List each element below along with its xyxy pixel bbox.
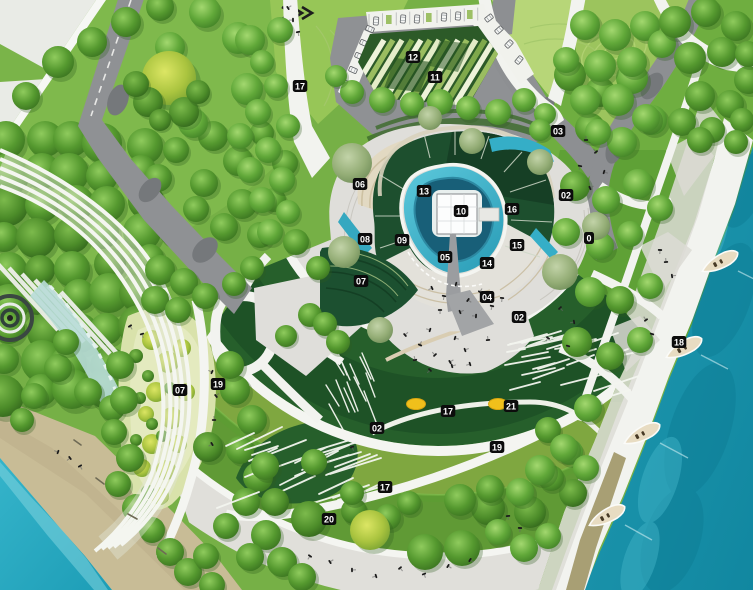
svg-text:12: 12 — [408, 52, 418, 62]
svg-text:06: 06 — [355, 179, 365, 189]
svg-text:07: 07 — [356, 276, 366, 286]
svg-text:19: 19 — [213, 379, 223, 389]
svg-text:17: 17 — [295, 81, 305, 91]
svg-text:08: 08 — [360, 234, 370, 244]
svg-text:02: 02 — [561, 190, 571, 200]
svg-text:05: 05 — [440, 252, 450, 262]
svg-text:20: 20 — [324, 514, 334, 524]
svg-text:02: 02 — [372, 423, 382, 433]
svg-text:02: 02 — [514, 312, 524, 322]
svg-text:03: 03 — [553, 126, 563, 136]
svg-text:07: 07 — [175, 385, 185, 395]
svg-text:14: 14 — [482, 258, 492, 268]
svg-text:15: 15 — [512, 240, 522, 250]
svg-text:17: 17 — [443, 406, 453, 416]
svg-text:0: 0 — [586, 233, 591, 243]
svg-text:17: 17 — [380, 482, 390, 492]
svg-text:11: 11 — [430, 72, 440, 82]
svg-text:13: 13 — [419, 186, 429, 196]
svg-text:21: 21 — [506, 401, 516, 411]
svg-text:04: 04 — [482, 292, 492, 302]
svg-text:10: 10 — [456, 206, 466, 216]
svg-text:19: 19 — [492, 442, 502, 452]
svg-text:16: 16 — [507, 204, 517, 214]
svg-text:18: 18 — [674, 337, 684, 347]
svg-text:09: 09 — [397, 235, 407, 245]
